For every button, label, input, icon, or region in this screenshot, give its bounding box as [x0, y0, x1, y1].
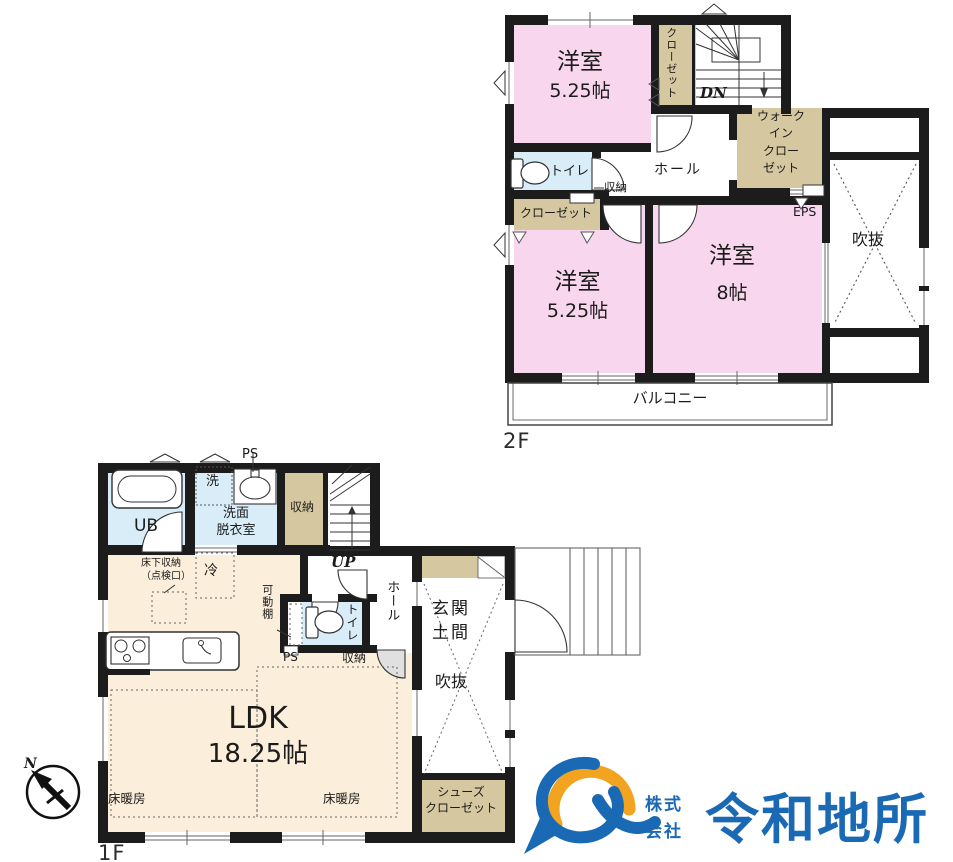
walkin-closet-label: ウォーク イン クロー ゼット: [735, 108, 827, 178]
stairs-up-label: UP: [331, 553, 355, 572]
closet-left-label: クローゼット: [512, 206, 600, 221]
fridge-label: 冷: [204, 563, 218, 581]
storage-top-label: 収納: [290, 500, 314, 515]
washer-label: 洗: [206, 474, 219, 490]
floor1-symbols: [150, 454, 230, 462]
room-a-name: 洋室: [520, 48, 640, 77]
storage2-label: 収納: [604, 180, 627, 194]
floorplan-page: 洋室 5.25帖 クローゼット DN トイレ ホール 収納 ウォーク イン クロ…: [0, 0, 953, 862]
void2-label: 吹抜: [852, 230, 884, 250]
floor2-label: 2F: [503, 428, 530, 454]
logo-mark: [524, 763, 655, 854]
movable-shelf-label: 可動棚: [260, 584, 274, 620]
eps-label: EPS: [793, 204, 816, 220]
hall1-label: ホール: [383, 580, 399, 622]
ps-mid-label: PS: [283, 650, 298, 665]
floor-heating-label: 床暖房: [108, 791, 146, 807]
ldk-name: LDK: [198, 700, 318, 738]
floor-heating-label: 床暖房: [323, 791, 361, 807]
counter-wall: [106, 669, 150, 675]
toilet1-label: トイレ: [344, 603, 359, 642]
underfloor-storage-label: 床下収納 （点検口）: [141, 557, 191, 583]
ps-top-label: PS: [242, 447, 258, 463]
stairs-dn-label: DN: [700, 84, 727, 103]
bathtub-icon: [112, 470, 182, 508]
room-b-size: 5.25帖: [515, 300, 640, 324]
balcony-label: バルコニー: [600, 389, 740, 408]
kitchen-counter-icon: [106, 632, 239, 670]
logo-company-name: 令和地所: [705, 786, 929, 854]
eps-box: [803, 185, 824, 196]
washroom-label: 洗面 脱衣室: [200, 506, 272, 540]
ldk-size: 18.25帖: [183, 738, 333, 771]
room-c-size: 8帖: [672, 282, 792, 306]
compass-icon: [27, 766, 79, 818]
shoes-closet-label: シューズ クローゼット: [413, 784, 509, 816]
entrance-label: 玄関 土間: [422, 598, 480, 646]
room-a-size: 5.25帖: [520, 80, 640, 104]
entrance-bench-fill: [422, 556, 478, 578]
toilet2-label: トイレ: [550, 164, 589, 180]
washbasin-icon: [234, 469, 276, 504]
storage-box: [570, 193, 594, 203]
door-arc: [657, 116, 692, 152]
hall2-label: ホール: [654, 162, 702, 180]
compass-north-label: N: [24, 756, 37, 774]
storage-mid-label: 収納: [342, 651, 366, 666]
closet-top-label: クローゼット: [664, 27, 678, 99]
unit-bath-label: UB: [116, 516, 176, 537]
stairs-up-icon: [330, 465, 370, 550]
floor1-label: 1F: [98, 840, 125, 862]
void1-label: 吹抜: [422, 672, 480, 692]
room-b-name: 洋室: [515, 268, 640, 297]
room-c-name: 洋室: [672, 242, 792, 271]
logo-company-prefix: 株式 会社: [645, 792, 683, 846]
